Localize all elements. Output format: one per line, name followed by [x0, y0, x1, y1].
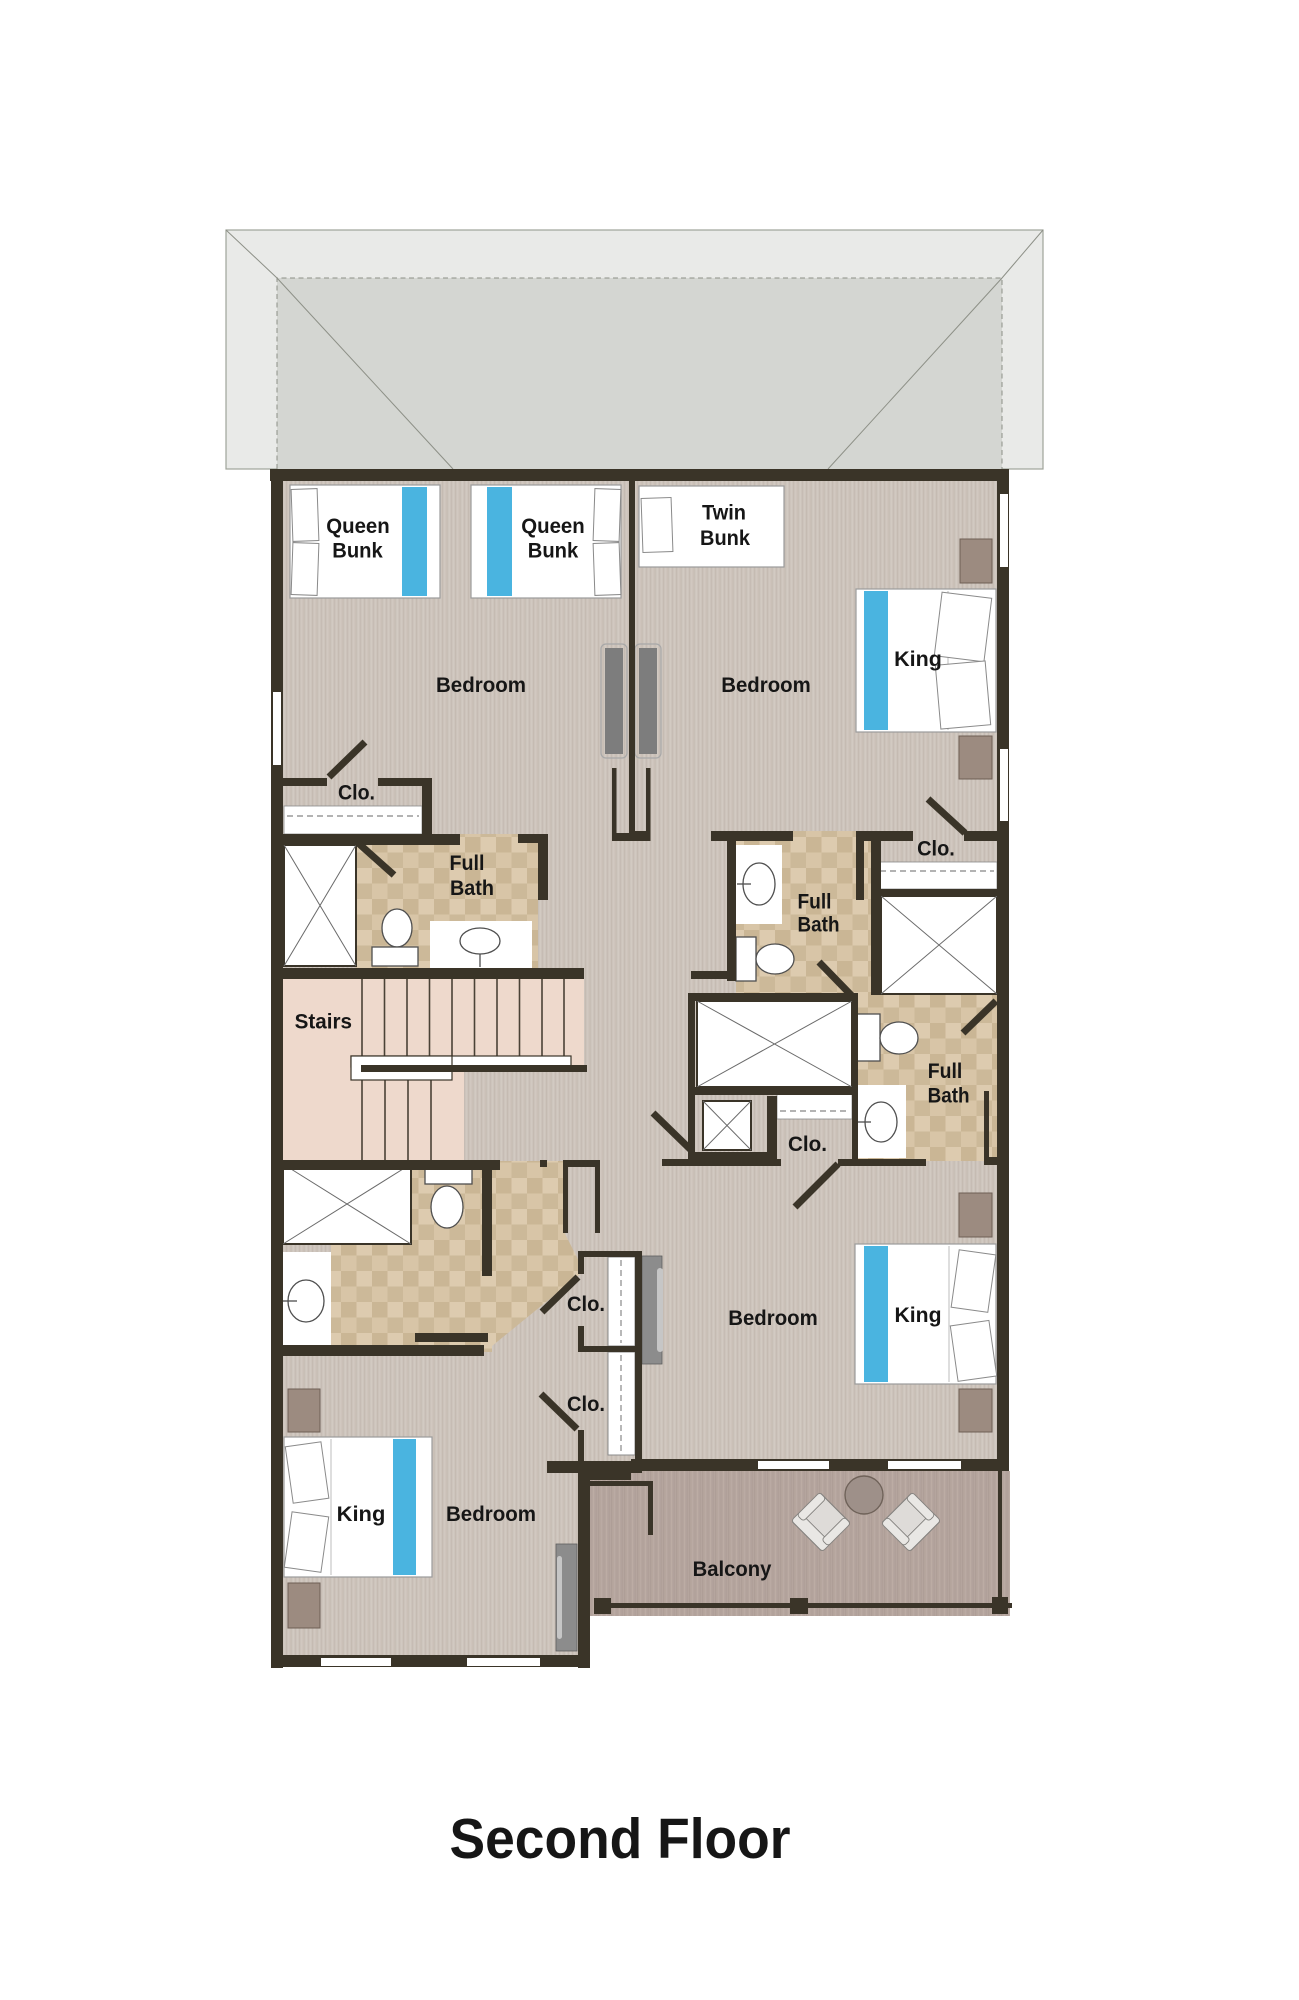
- svg-text:Balcony: Balcony: [693, 1558, 772, 1581]
- svg-text:King: King: [337, 1503, 386, 1526]
- svg-text:King: King: [895, 1304, 942, 1327]
- svg-text:Clo.: Clo.: [567, 1293, 605, 1316]
- svg-text:Bath: Bath: [798, 914, 840, 937]
- svg-text:Full: Full: [928, 1060, 963, 1083]
- svg-text:Bath: Bath: [450, 877, 494, 900]
- svg-text:Bath: Bath: [928, 1085, 970, 1108]
- svg-text:Queen: Queen: [326, 515, 390, 538]
- svg-text:Stairs: Stairs: [295, 1011, 352, 1034]
- svg-text:King: King: [894, 648, 942, 671]
- svg-text:Second Floor: Second Floor: [450, 1807, 791, 1871]
- svg-text:Bedroom: Bedroom: [446, 1503, 536, 1526]
- svg-text:Bedroom: Bedroom: [728, 1307, 818, 1330]
- svg-text:Clo.: Clo.: [338, 782, 375, 805]
- svg-text:Full: Full: [798, 891, 832, 914]
- svg-text:Bunk: Bunk: [528, 540, 579, 563]
- svg-text:Bunk: Bunk: [700, 527, 750, 550]
- svg-text:Bedroom: Bedroom: [436, 674, 526, 697]
- svg-text:Clo.: Clo.: [567, 1393, 605, 1416]
- svg-text:Bunk: Bunk: [332, 540, 383, 563]
- svg-text:Twin: Twin: [702, 502, 746, 525]
- svg-text:Full: Full: [450, 852, 485, 875]
- svg-text:Clo.: Clo.: [788, 1133, 827, 1156]
- svg-text:Bedroom: Bedroom: [721, 674, 811, 697]
- svg-text:Queen: Queen: [521, 515, 585, 538]
- svg-text:Clo.: Clo.: [917, 838, 955, 861]
